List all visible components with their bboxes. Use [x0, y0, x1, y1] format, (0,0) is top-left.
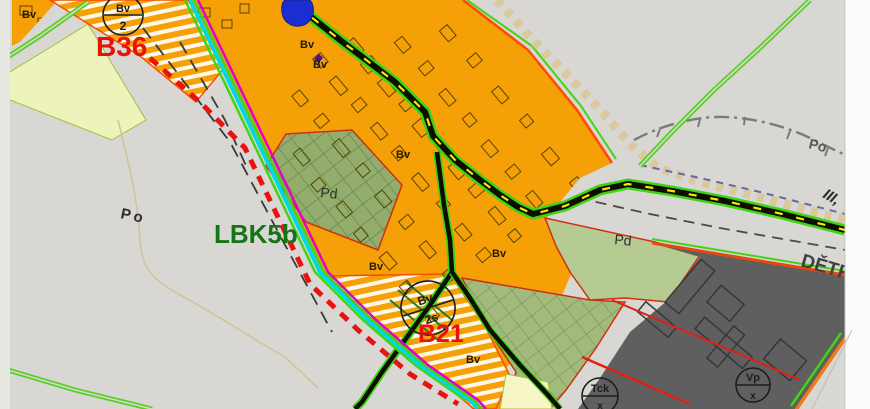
sheet-margin-right: [845, 0, 870, 409]
label-bv: Bv: [369, 261, 384, 273]
zone-symbol-vp: Vp x: [736, 368, 770, 402]
label-bv: Bv: [22, 9, 37, 21]
label-pd-left: Pd: [320, 184, 339, 202]
label-bv: Bv: [466, 354, 481, 366]
label-pd-right: Pd: [614, 231, 633, 249]
sheet-margin-left: [0, 0, 10, 409]
svg-text:Tck: Tck: [591, 383, 610, 395]
label-b36: B36: [96, 31, 147, 62]
zoning-map-canvas: Bv 2 Bv 2s Vp x Tck x B36 B21 LBK5b Po P…: [0, 0, 870, 409]
label-lbk5b: LBK5b: [214, 219, 298, 249]
pond-water-body: [282, 0, 314, 26]
label-bv: Bv: [396, 149, 411, 161]
svg-text:Bv: Bv: [116, 3, 131, 15]
label-bv: Bv: [300, 39, 315, 51]
svg-text:Vp: Vp: [746, 372, 760, 384]
svg-text:x: x: [597, 401, 603, 409]
zoning-map: Bv 2 Bv 2s Vp x Tck x B36 B21 LBK5b Po P…: [0, 0, 870, 409]
label-bv: Bv: [313, 59, 328, 71]
label-b21: B21: [418, 320, 464, 348]
label-bv: Bv: [492, 248, 507, 260]
svg-text:x: x: [750, 391, 756, 402]
